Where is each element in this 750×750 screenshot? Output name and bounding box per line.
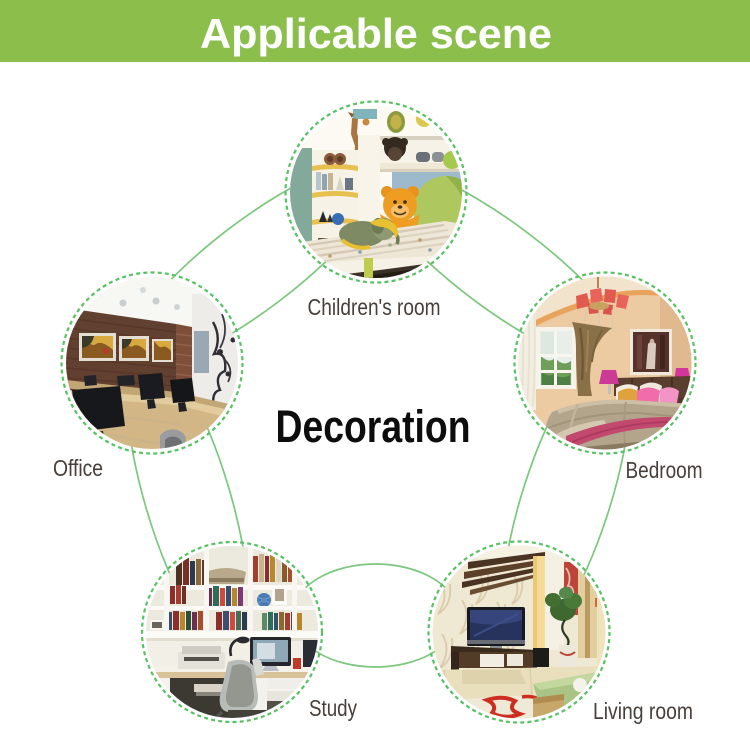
svg-text:Children's room: Children's room: [308, 294, 441, 320]
svg-text:Office: Office: [53, 455, 103, 481]
svg-text:Bedroom: Bedroom: [626, 457, 703, 483]
svg-text:Applicable scene: Applicable scene: [200, 10, 552, 57]
svg-text:Study: Study: [309, 695, 357, 721]
svg-text:Decoration: Decoration: [276, 401, 471, 452]
svg-text:Living room: Living room: [593, 698, 693, 724]
